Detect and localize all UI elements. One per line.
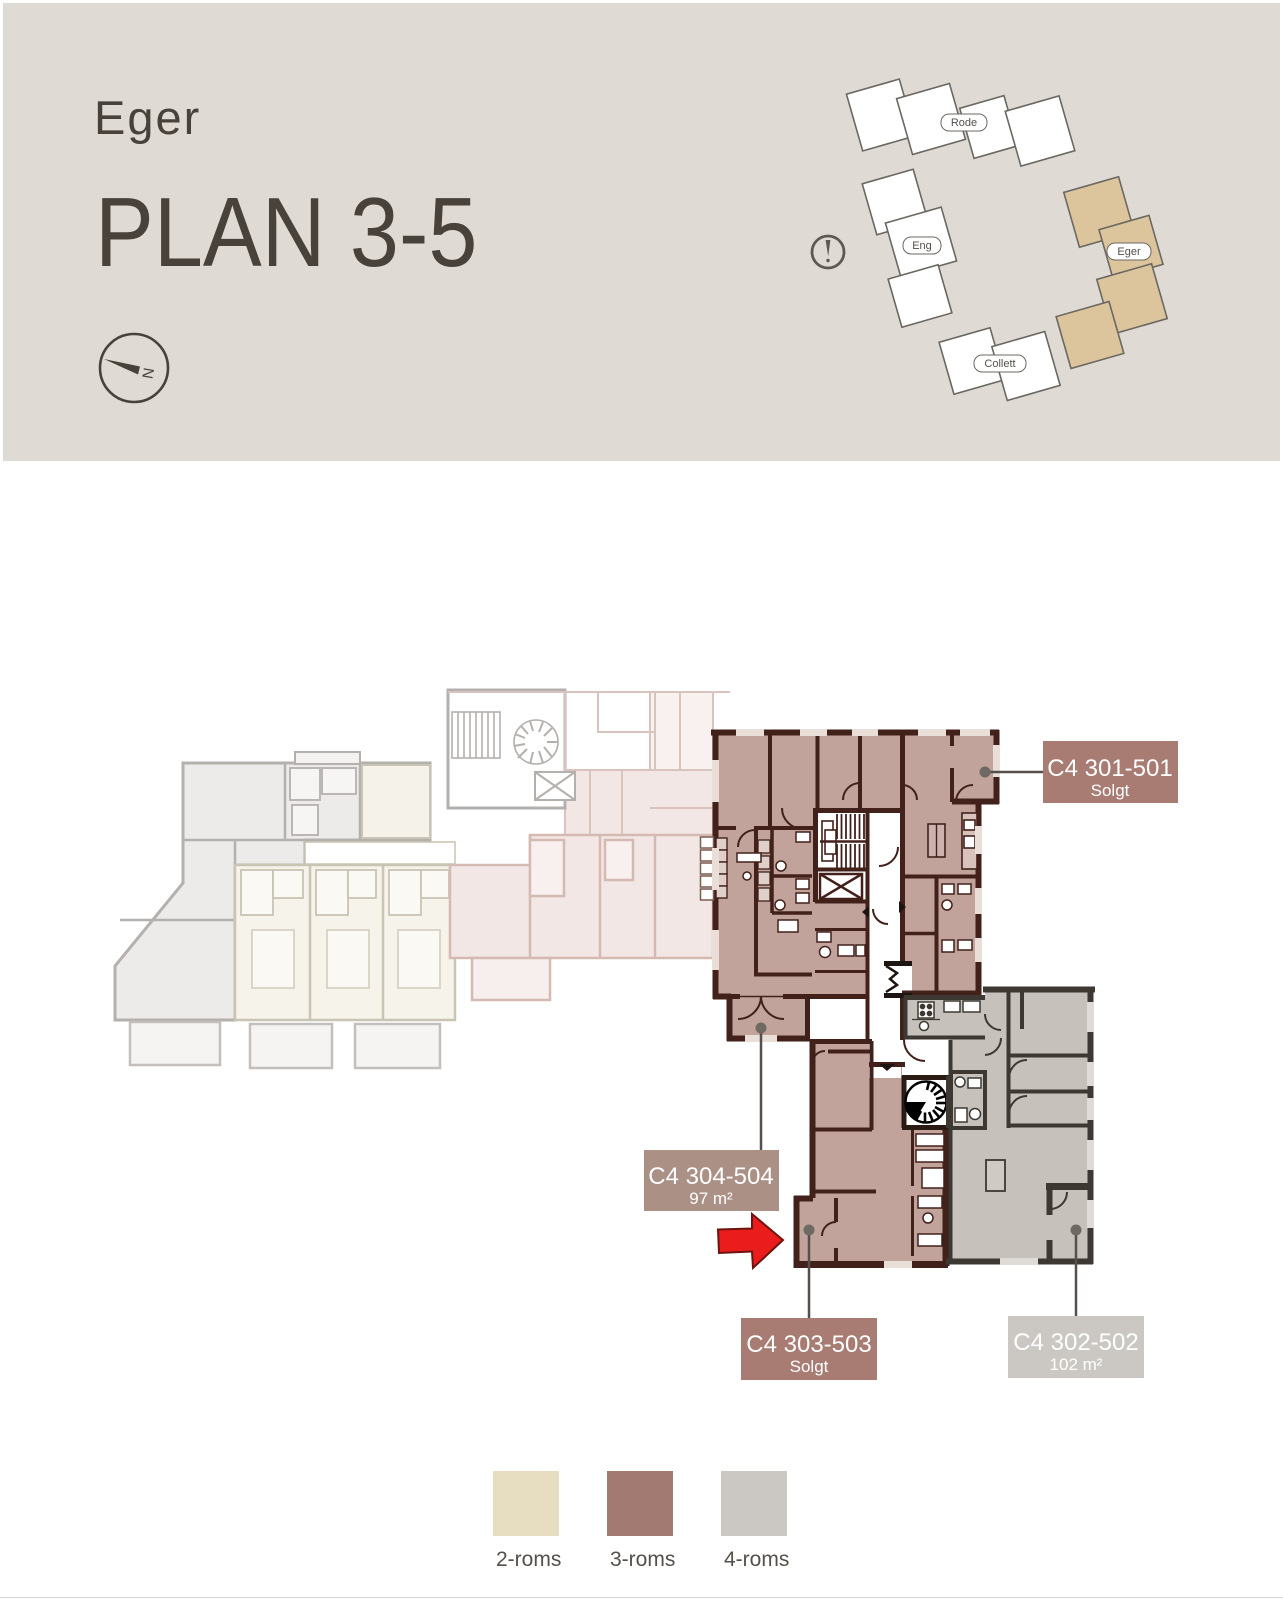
svg-text:C4 304-504: C4 304-504 (648, 1163, 773, 1190)
svg-text:Rode: Rode (951, 117, 977, 129)
svg-text:Solgt: Solgt (790, 1357, 829, 1376)
svg-text:Collett: Collett (984, 358, 1015, 370)
svg-text:C4 303-503: C4 303-503 (746, 1331, 871, 1358)
svg-text:Solgt: Solgt (1091, 781, 1130, 800)
svg-text:Eger: Eger (1117, 246, 1141, 258)
svg-text:97 m²: 97 m² (689, 1189, 733, 1208)
svg-text:C4 302-502: C4 302-502 (1013, 1329, 1138, 1356)
svg-text:Eng: Eng (912, 240, 932, 252)
svg-text:C4 301-501: C4 301-501 (1047, 755, 1172, 782)
svg-text:102 m²: 102 m² (1050, 1355, 1103, 1374)
svg-text:N: N (138, 366, 157, 380)
